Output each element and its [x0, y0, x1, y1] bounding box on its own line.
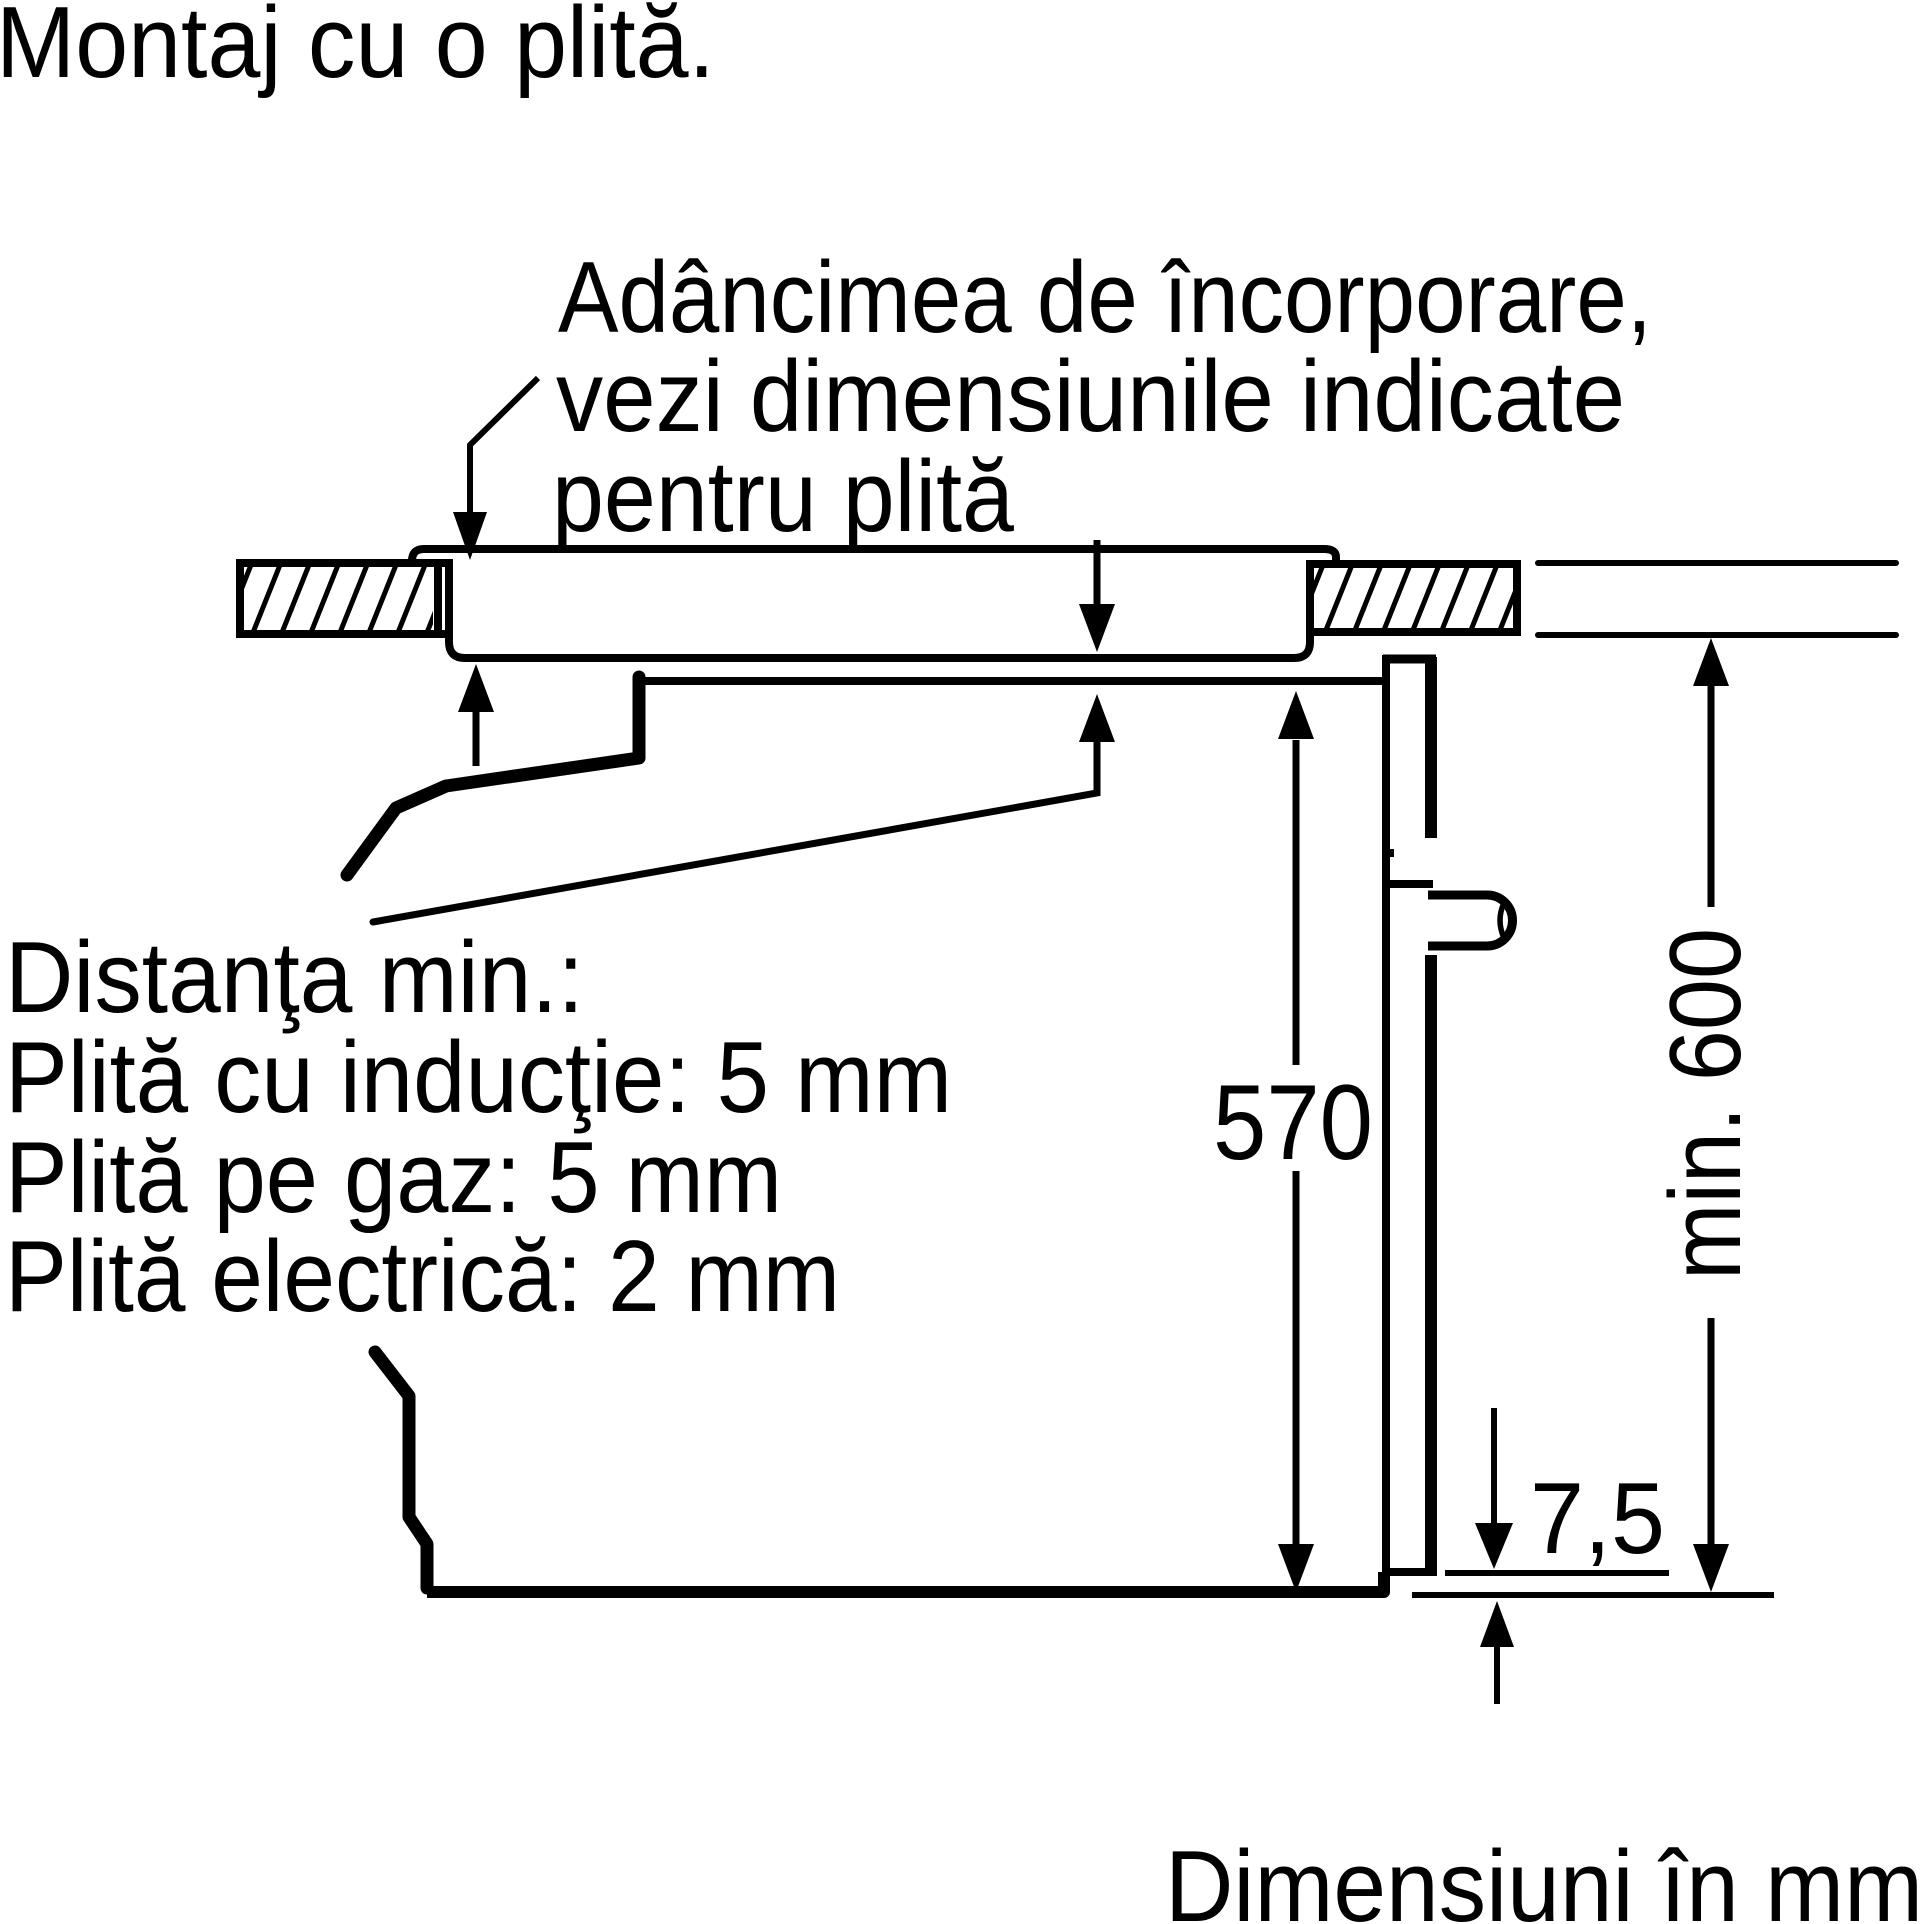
svg-text:Montaj cu o plită.: Montaj cu o plită.: [0, 0, 715, 99]
svg-text:Plită pe gaz: 5 mm: Plită pe gaz: 5 mm: [5, 1122, 782, 1234]
svg-text:570: 570: [1213, 1062, 1373, 1182]
svg-text:7,5: 7,5: [1530, 1463, 1665, 1575]
svg-text:pentru plită: pentru plită: [552, 441, 1015, 553]
svg-text:Dimensiuni în mm: Dimensiuni în mm: [1165, 1831, 1923, 1924]
svg-text:Adâncimea de încorporare,: Adâncimea de încorporare,: [558, 242, 1652, 354]
svg-text:Distanţa min.:: Distanţa min.:: [5, 922, 584, 1034]
svg-text:Plită electrică: 2 mm: Plită electrică: 2 mm: [5, 1221, 840, 1333]
svg-text:Plită cu inducţie: 5 mm: Plită cu inducţie: 5 mm: [5, 1022, 952, 1134]
svg-text:vezi dimensiunile indicate: vezi dimensiunile indicate: [556, 341, 1625, 453]
svg-text:min. 600: min. 600: [1650, 928, 1762, 1280]
